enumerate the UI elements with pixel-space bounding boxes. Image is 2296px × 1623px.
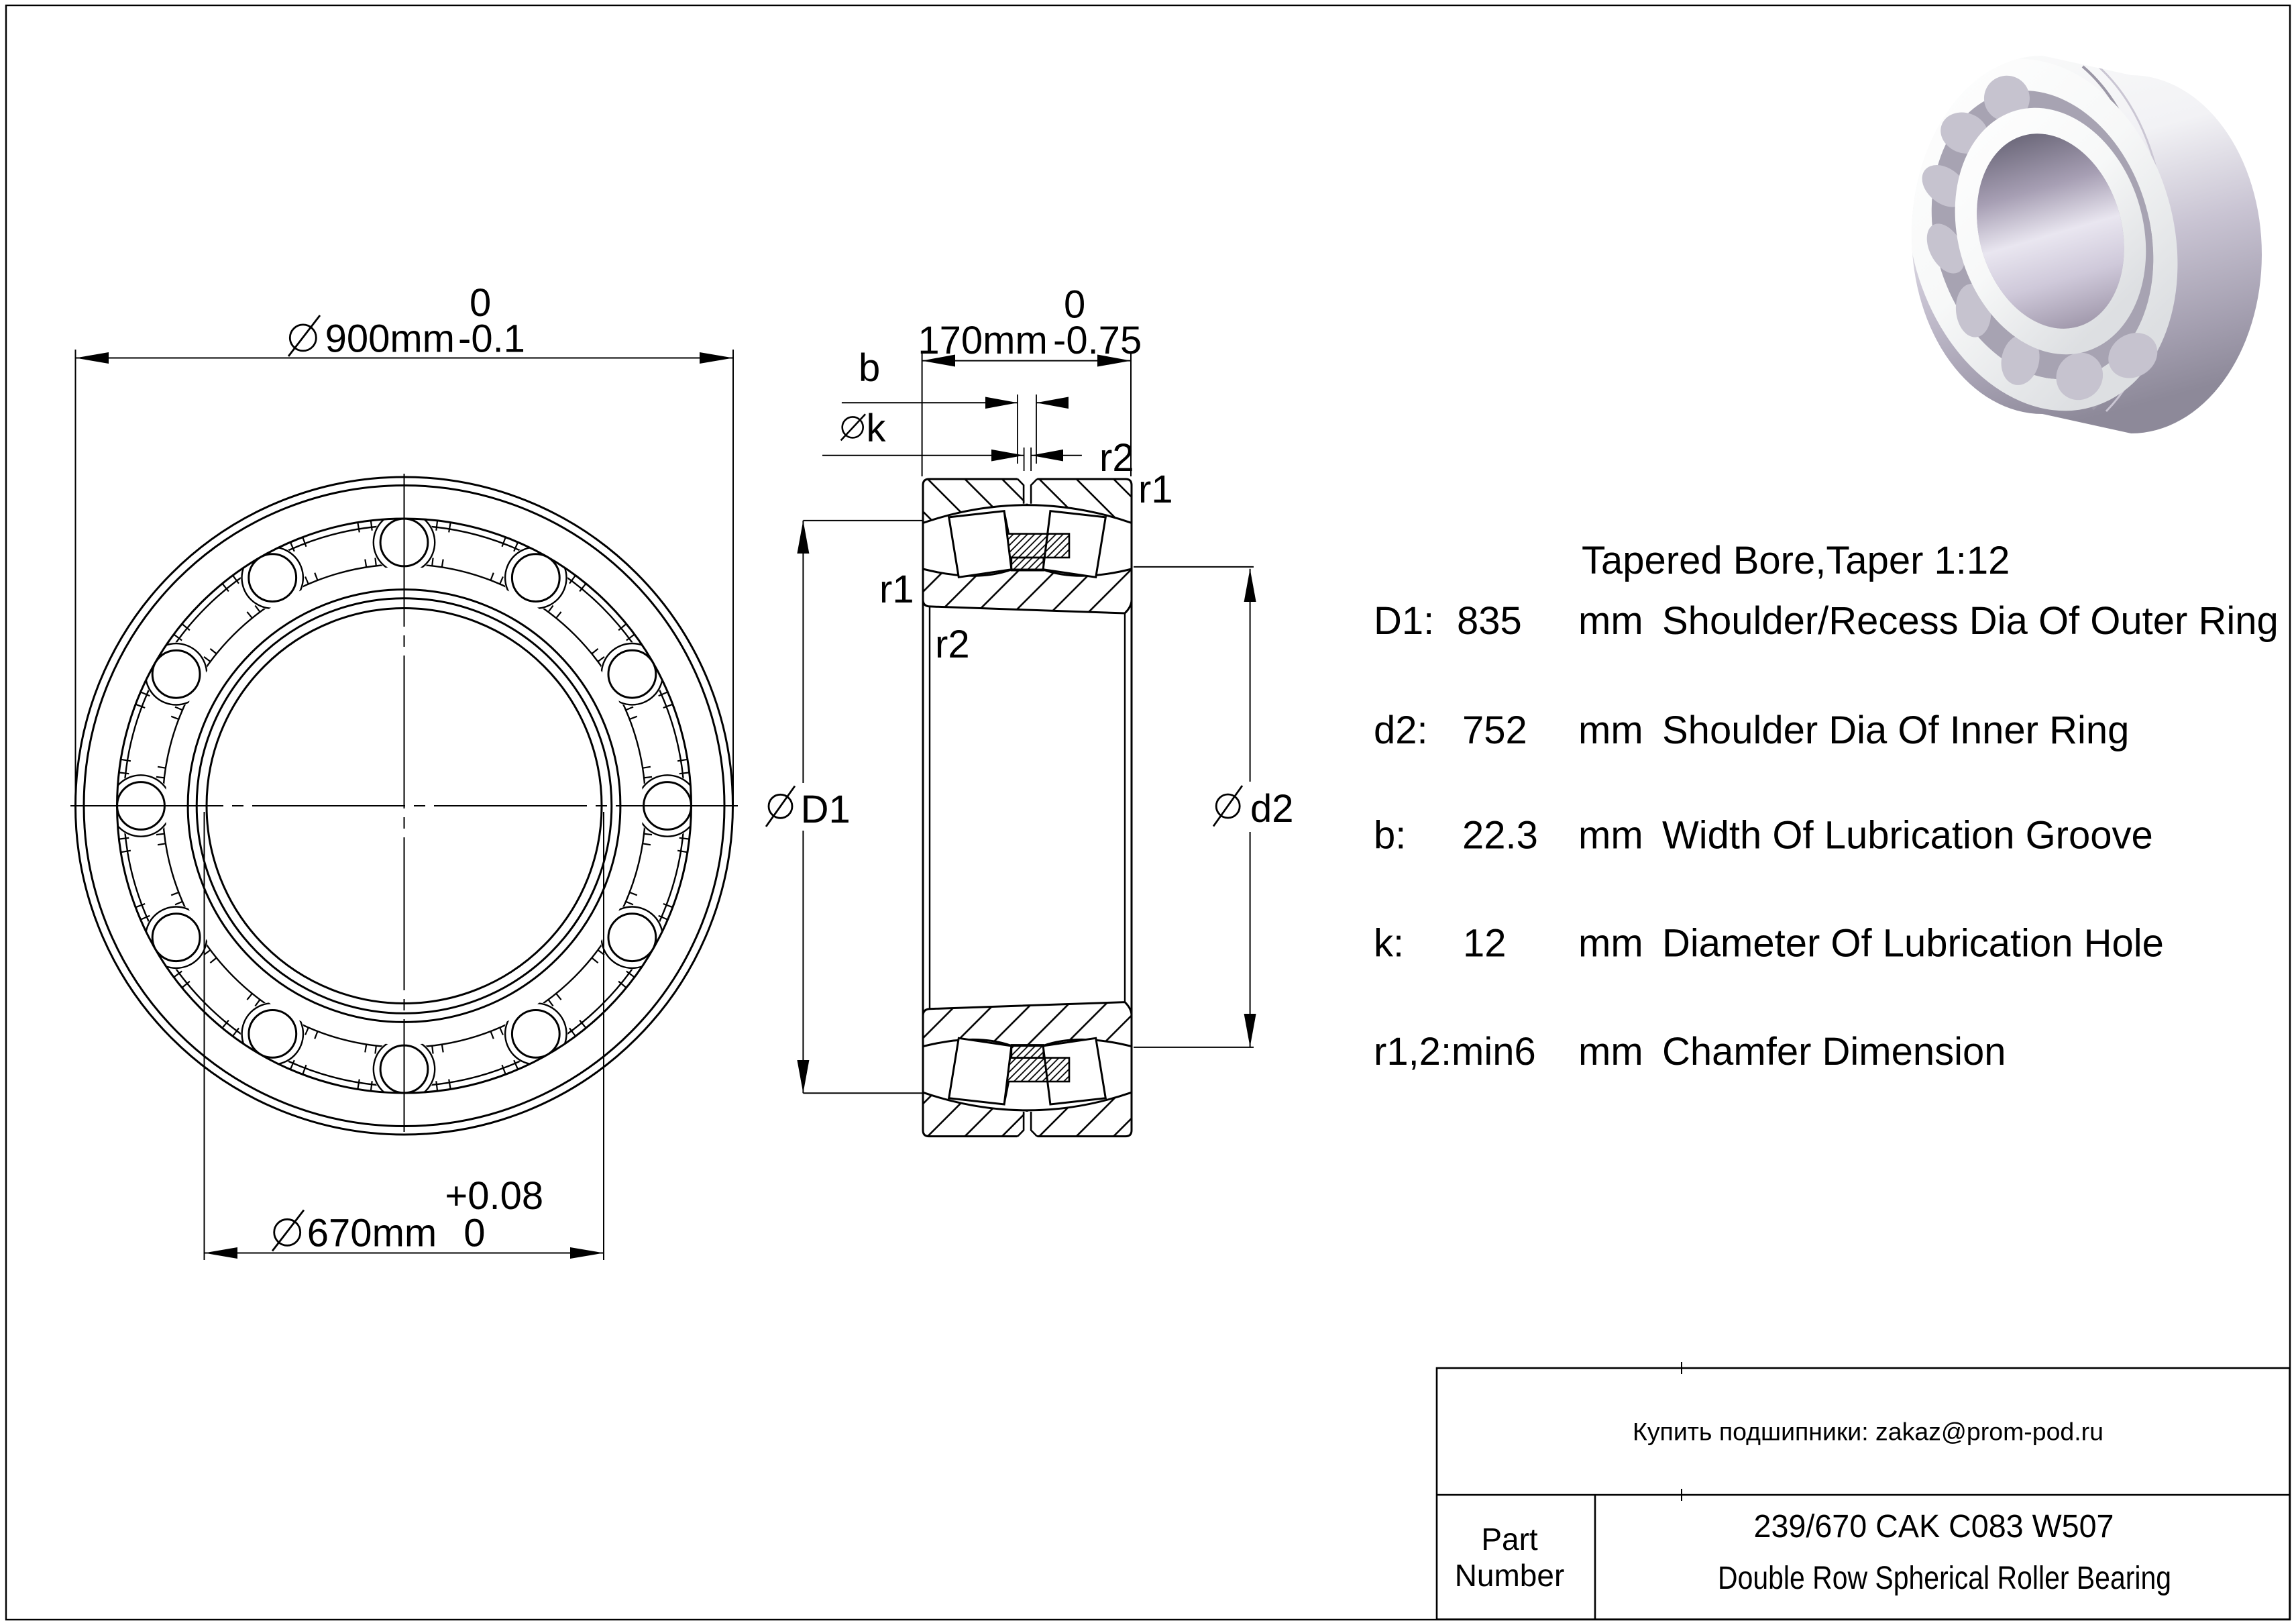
svg-text:+0.08: +0.08 xyxy=(445,1174,543,1218)
svg-text:b:: b: xyxy=(1374,814,1406,857)
svg-text:22.3: 22.3 xyxy=(1462,814,1538,857)
svg-text:-0.1: -0.1 xyxy=(458,317,525,360)
svg-text:Купить подшипники: zakaz@prom-: Купить подшипники: zakaz@prom-pod.ru xyxy=(1633,1418,2103,1446)
svg-text:Part: Part xyxy=(1481,1522,1538,1557)
svg-text:900mm: 900mm xyxy=(325,317,455,360)
svg-text:170mm: 170mm xyxy=(918,319,1047,362)
svg-text:Number: Number xyxy=(1455,1558,1565,1593)
svg-text:r2: r2 xyxy=(1099,436,1134,480)
svg-text:Shoulder/Recess Dia Of Outer R: Shoulder/Recess Dia Of Outer Ring xyxy=(1662,599,2279,643)
svg-text:mm: mm xyxy=(1578,921,1643,965)
svg-text:mm: mm xyxy=(1578,814,1643,857)
svg-text:Width Of Lubrication Groove: Width Of Lubrication Groove xyxy=(1662,814,2153,857)
svg-text:0: 0 xyxy=(470,281,491,325)
svg-text:0: 0 xyxy=(463,1212,485,1255)
svg-text:835: 835 xyxy=(1457,599,1522,643)
svg-text:Double Row Spherical Roller Be: Double Row Spherical Roller Bearing xyxy=(1718,1561,2171,1596)
svg-text:mm: mm xyxy=(1578,599,1643,643)
svg-text:r2: r2 xyxy=(935,623,970,666)
svg-text:r1,2:min6: r1,2:min6 xyxy=(1374,1030,1536,1074)
svg-text:k:: k: xyxy=(1374,921,1404,965)
svg-text:mm: mm xyxy=(1578,1030,1643,1074)
svg-text:239/670 CAK C083 W507: 239/670 CAK C083 W507 xyxy=(1754,1509,2114,1545)
svg-text:r1: r1 xyxy=(1138,468,1173,511)
svg-text:D1: D1 xyxy=(801,788,851,831)
svg-text:d2: d2 xyxy=(1250,787,1294,831)
svg-text:D1:: D1: xyxy=(1374,599,1434,643)
svg-text:Shoulder Dia Of Inner Ring: Shoulder Dia Of Inner Ring xyxy=(1662,709,2129,752)
svg-text:Chamfer Dimension: Chamfer Dimension xyxy=(1662,1030,2006,1074)
svg-text:Diameter Of Lubrication Hole: Diameter Of Lubrication Hole xyxy=(1662,921,2164,965)
svg-text:k: k xyxy=(867,407,887,450)
svg-text:r1: r1 xyxy=(879,568,914,611)
svg-text:12: 12 xyxy=(1463,921,1507,965)
svg-text:mm: mm xyxy=(1578,709,1643,752)
svg-text:Tapered Bore,Taper 1:12: Tapered Bore,Taper 1:12 xyxy=(1582,539,2010,582)
svg-text:670mm: 670mm xyxy=(307,1212,437,1255)
svg-text:b: b xyxy=(859,346,880,390)
svg-text:0: 0 xyxy=(1064,283,1085,327)
svg-text:d2:: d2: xyxy=(1374,709,1428,752)
svg-text:752: 752 xyxy=(1462,709,1527,752)
